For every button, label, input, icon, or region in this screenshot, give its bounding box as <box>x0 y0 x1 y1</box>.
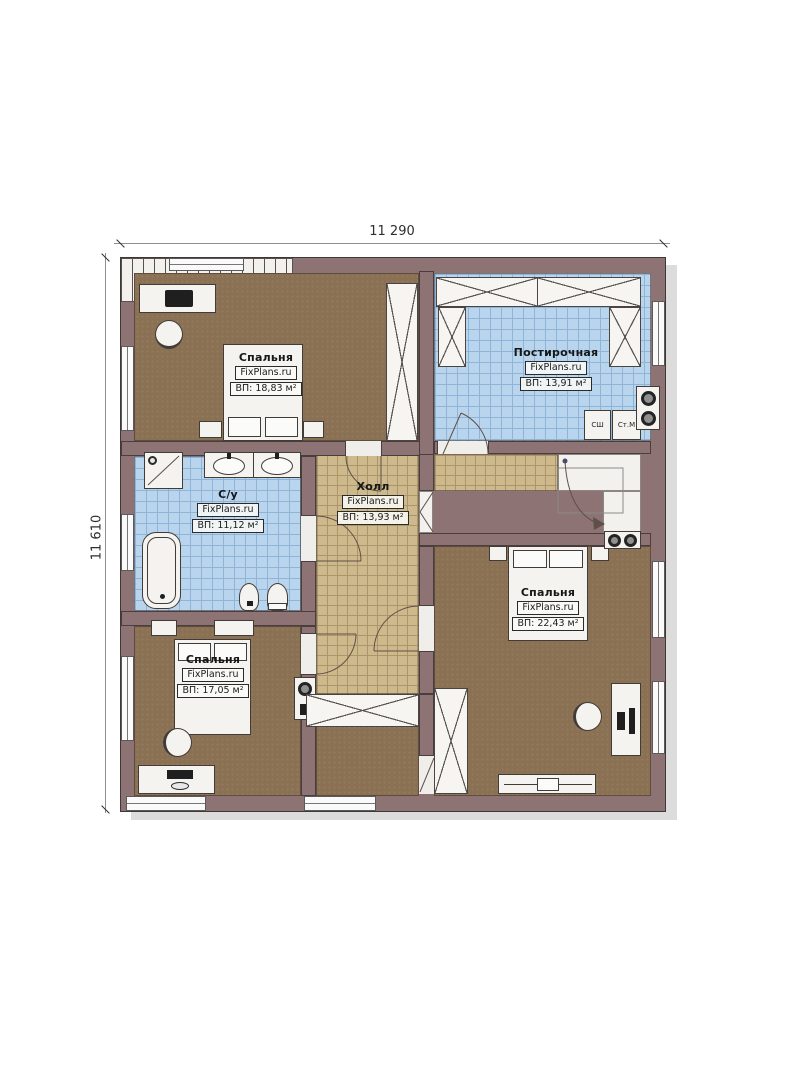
door-opening <box>301 516 316 561</box>
door-opening <box>419 756 434 794</box>
room-label-laundry: Постирочная FixPlans.ru ВП: 13,91 м² <box>506 346 606 391</box>
window <box>652 561 665 638</box>
room-name: Спальня <box>521 586 575 599</box>
chair <box>163 728 192 757</box>
shower-head <box>148 456 157 465</box>
sink <box>213 457 245 475</box>
toilet-tank <box>268 603 287 610</box>
washer-drum <box>641 411 656 426</box>
room-area: ВП: 17,05 м² <box>177 684 248 698</box>
washer-dryer-stack <box>636 386 660 430</box>
wall <box>419 651 434 694</box>
chair <box>573 702 602 731</box>
bidet <box>239 583 259 611</box>
counter-divider <box>253 453 254 477</box>
window <box>652 301 665 366</box>
wardrobe <box>306 694 419 727</box>
computer <box>617 712 625 730</box>
sink-counter <box>204 452 301 478</box>
pillow <box>513 550 547 568</box>
brand-watermark: FixPlans.ru <box>197 503 258 517</box>
monitor <box>629 708 635 734</box>
floor-hall-landing <box>434 454 558 491</box>
window <box>121 346 134 431</box>
floor-plan-page: 11 290 11 610 <box>0 0 792 1080</box>
washer-drum <box>641 391 656 406</box>
room-label-bedroom-right: Спальня FixPlans.ru ВП: 22,43 м² <box>498 586 598 631</box>
nightstand <box>199 421 222 438</box>
room-name: Спальня <box>186 653 240 666</box>
wall <box>301 456 316 516</box>
vent-duct <box>608 534 621 547</box>
room-label-bathroom: С/у FixPlans.ru ВП: 11,12 м² <box>178 488 278 533</box>
room-name: С/у <box>218 488 238 501</box>
room-area: ВП: 18,83 м² <box>230 382 301 396</box>
media-console <box>139 284 216 313</box>
nightstand <box>151 620 177 636</box>
tv <box>537 778 559 791</box>
washing-machine-label: Ст.М <box>618 421 635 429</box>
room-label-bedroom-top: Спальня FixPlans.ru ВП: 18,83 м² <box>216 351 316 396</box>
brand-watermark: FixPlans.ru <box>525 361 586 375</box>
brand-watermark: FixPlans.ru <box>342 495 403 509</box>
room-label-hall: Холл FixPlans.ru ВП: 13,93 м² <box>323 480 423 525</box>
floor-stair-side <box>603 491 641 533</box>
dimension-height-label: 11 610 <box>90 496 105 580</box>
room-area: ВП: 22,43 м² <box>512 617 583 631</box>
bathtub-drain <box>160 594 165 599</box>
wardrobe <box>438 307 466 367</box>
floor-plan: СШ Ст.М <box>120 257 666 812</box>
nightstand <box>303 421 324 438</box>
room-name: Спальня <box>239 351 293 364</box>
wall <box>419 546 434 606</box>
dimension-width-label: 11 290 <box>120 224 664 239</box>
window <box>121 656 134 741</box>
sink <box>261 457 293 475</box>
dimension-width-line <box>114 243 670 244</box>
dresser <box>498 774 596 794</box>
room-area: ВП: 13,93 м² <box>337 511 408 525</box>
ventilation-unit <box>604 531 641 549</box>
dimension-height-line <box>105 253 106 813</box>
wardrobe <box>537 277 641 307</box>
keyboard <box>171 782 189 790</box>
wardrobe <box>386 283 418 441</box>
nightstand <box>214 620 254 636</box>
vent-duct <box>624 534 637 547</box>
window <box>304 796 376 811</box>
nightstand <box>489 546 507 561</box>
tv <box>165 290 193 307</box>
brand-watermark: FixPlans.ru <box>182 668 243 682</box>
wardrobe <box>609 307 641 367</box>
bidet-drain <box>247 601 253 606</box>
wardrobe <box>436 277 538 307</box>
bathtub <box>142 532 181 609</box>
desk <box>138 765 215 794</box>
window <box>121 514 134 571</box>
room-name: Постирочная <box>514 346 599 359</box>
wall <box>488 441 651 454</box>
door-opening <box>419 606 434 651</box>
drying-cabinet: СШ <box>584 410 611 440</box>
wall <box>419 271 434 456</box>
toilet <box>267 583 288 611</box>
brand-watermark: FixPlans.ru <box>235 366 296 380</box>
door-opening <box>438 441 488 454</box>
pillow <box>228 417 261 437</box>
room-area: ВП: 11,12 м² <box>192 519 263 533</box>
floor-stair-landing <box>558 454 641 491</box>
door-opening <box>346 441 381 456</box>
window <box>126 796 206 811</box>
room-area: ВП: 13,91 м² <box>520 377 591 391</box>
room-name: Холл <box>357 480 390 493</box>
brand-watermark: FixPlans.ru <box>517 601 578 615</box>
shower <box>144 452 183 489</box>
monitor <box>167 770 193 779</box>
drying-cabinet-label: СШ <box>591 421 603 429</box>
pillow <box>265 417 298 437</box>
window <box>169 258 244 271</box>
desk <box>611 683 641 756</box>
door-opening <box>301 634 316 674</box>
tap <box>227 453 231 459</box>
room-label-bedroom-bottom: Спальня FixPlans.ru ВП: 17,05 м² <box>163 653 263 698</box>
chair <box>155 320 183 349</box>
wardrobe <box>434 688 468 794</box>
wall <box>301 626 316 634</box>
window <box>652 681 665 754</box>
wall <box>419 694 434 756</box>
pillow <box>549 550 583 568</box>
tap <box>275 453 279 459</box>
